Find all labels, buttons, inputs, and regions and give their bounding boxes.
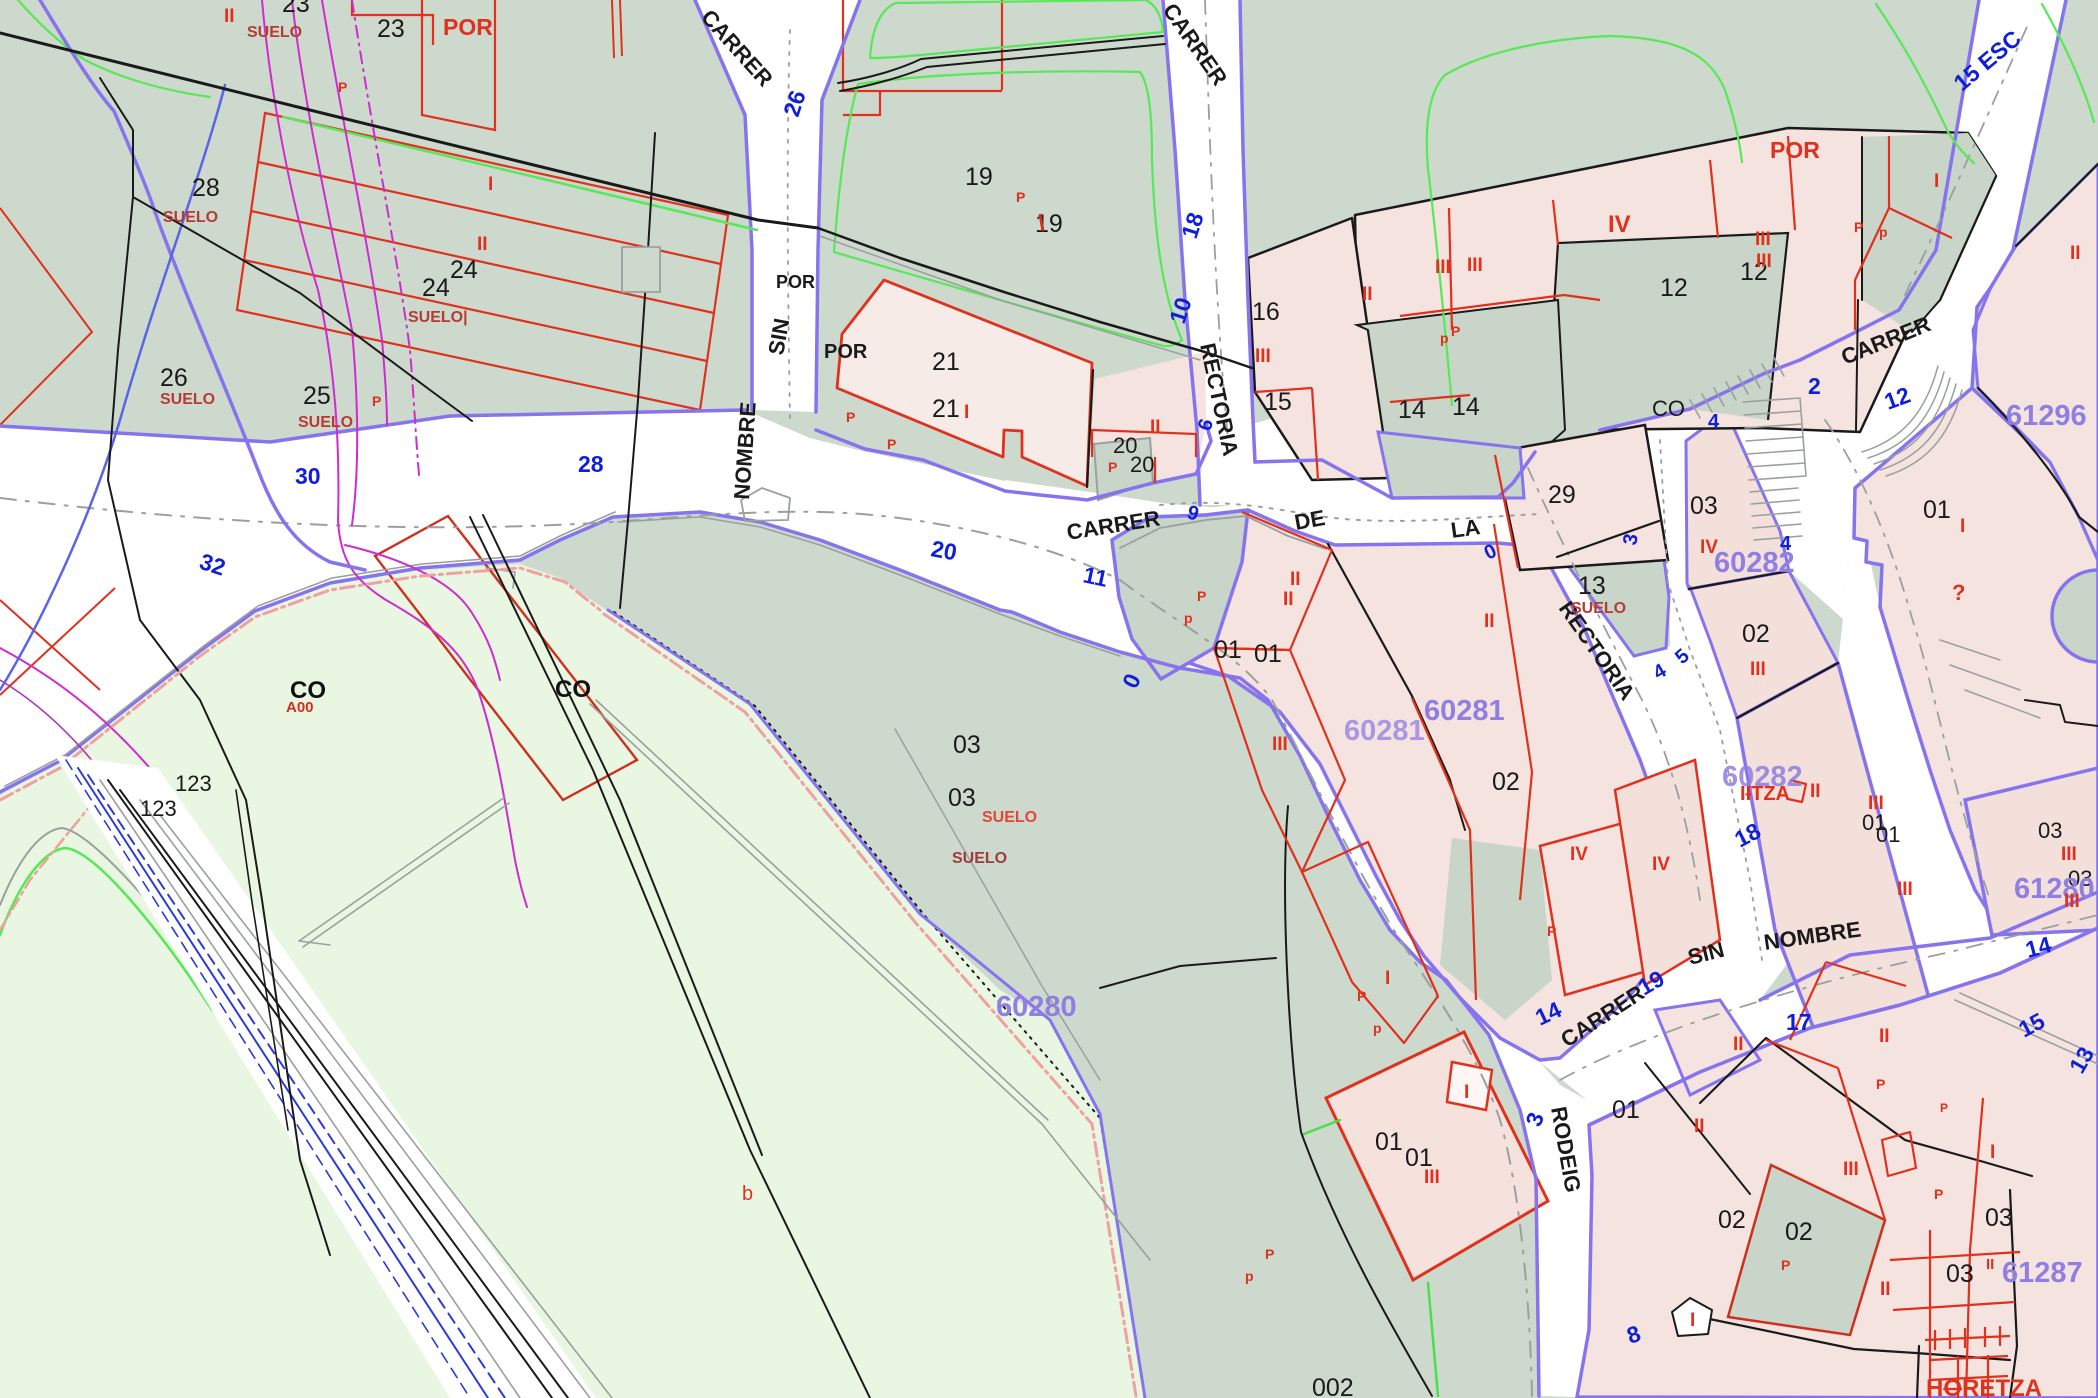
svg-text:II: II (477, 234, 488, 255)
svg-text:III: III (1843, 1159, 1859, 1180)
svg-text:P: P (372, 393, 381, 409)
svg-text:II: II (1150, 417, 1161, 438)
svg-text:16: 16 (1252, 298, 1280, 326)
svg-text:POR: POR (1770, 137, 1820, 163)
svg-text:14: 14 (1398, 396, 1426, 424)
svg-text:III: III (2064, 891, 2080, 912)
svg-text:III: III (1435, 257, 1451, 278)
svg-text:SUELO: SUELO (952, 850, 1007, 867)
svg-text:P: P (338, 79, 347, 95)
svg-text:?: ? (1952, 580, 1965, 605)
svg-text:60282: 60282 (1714, 547, 1795, 579)
svg-text:P: P (887, 436, 896, 452)
svg-text:03: 03 (2038, 818, 2062, 843)
svg-text:II: II (1484, 611, 1495, 632)
svg-text:p: p (1245, 1268, 1254, 1284)
svg-text:01: 01 (1612, 1096, 1640, 1124)
svg-text:SUELO: SUELO (298, 414, 353, 431)
svg-text:P: P (1108, 459, 1117, 475)
svg-text:I: I (1960, 516, 1965, 537)
svg-text:II: II (1733, 1034, 1744, 1055)
svg-text:23: 23 (282, 0, 310, 18)
svg-text:SUELO: SUELO (163, 209, 218, 226)
svg-text:b: b (742, 1183, 753, 1205)
svg-text:II: II (1880, 1279, 1891, 1300)
svg-text:p: p (1440, 330, 1449, 346)
svg-text:POR: POR (776, 272, 815, 292)
svg-text:123: 123 (140, 796, 177, 821)
svg-text:29: 29 (1548, 481, 1576, 509)
svg-text:2: 2 (1808, 373, 1821, 399)
svg-text:IV: IV (1652, 854, 1670, 875)
svg-text:23: 23 (377, 15, 405, 43)
svg-text:60281: 60281 (1344, 715, 1425, 747)
svg-text:60281: 60281 (1424, 695, 1505, 727)
svg-text:III: III (1750, 659, 1766, 680)
svg-text:I: I (1385, 968, 1390, 989)
svg-text:01: 01 (1876, 822, 1900, 847)
svg-text:II: II (1283, 589, 1294, 610)
svg-text:POR: POR (443, 14, 493, 40)
svg-text:CO: CO (555, 676, 591, 703)
svg-text:P: P (1781, 1257, 1790, 1273)
svg-text:SUELO: SUELO (982, 809, 1037, 826)
svg-text:SUELO: SUELO (1571, 600, 1626, 617)
svg-text:P: P (1197, 588, 1206, 604)
svg-text:P: P (846, 409, 855, 425)
svg-text:02: 02 (1492, 768, 1520, 796)
svg-text:SUELO|: SUELO| (408, 309, 468, 326)
svg-text:IV: IV (1570, 844, 1588, 865)
svg-text:P: P (1547, 923, 1556, 939)
svg-text:SUELO: SUELO (160, 391, 215, 408)
svg-text:03: 03 (1985, 1204, 2013, 1232)
svg-text:I: I (964, 402, 969, 423)
svg-text:02: 02 (1742, 620, 1770, 648)
svg-text:P: P (1357, 988, 1366, 1004)
svg-text:I: I (1934, 171, 1939, 192)
svg-text:61287: 61287 (2002, 1257, 2083, 1289)
svg-text:II: II (2070, 243, 2081, 264)
svg-text:02: 02 (1718, 1206, 1746, 1234)
svg-text:I: I (1464, 1082, 1469, 1103)
svg-text:LA: LA (1449, 514, 1482, 543)
svg-text:I: I (488, 174, 493, 195)
svg-text:CO: CO (1652, 396, 1685, 421)
svg-text:30: 30 (295, 463, 321, 489)
svg-text:13: 13 (1578, 572, 1606, 600)
svg-text:POR: POR (824, 341, 868, 363)
svg-text:II: II (224, 6, 235, 27)
svg-text:21: 21 (932, 348, 960, 376)
svg-text:25: 25 (303, 382, 331, 410)
svg-text:03: 03 (1946, 1260, 1974, 1288)
svg-text:24: 24 (450, 256, 478, 284)
svg-text:III: III (1868, 793, 1884, 814)
svg-text:II: II (1986, 1256, 1994, 1273)
svg-text:4: 4 (1708, 411, 1720, 433)
svg-text:A00: A00 (286, 699, 314, 716)
svg-text:DE: DE (1293, 505, 1327, 535)
svg-text:P: P (1940, 1101, 1948, 1115)
svg-text:SUELO: SUELO (247, 24, 302, 41)
svg-text:P: P (1451, 323, 1460, 339)
svg-text:II: II (1879, 1026, 1890, 1047)
svg-text:20: 20 (1130, 452, 1154, 477)
svg-text:I: I (1690, 1310, 1695, 1331)
svg-text:26: 26 (160, 364, 188, 392)
svg-text:II: II (1362, 284, 1373, 305)
svg-text:28: 28 (578, 451, 604, 477)
svg-text:002: 002 (1312, 1374, 1354, 1398)
svg-text:HORETZA: HORETZA (1926, 1375, 2042, 1398)
svg-text:03: 03 (953, 731, 981, 759)
svg-text:20: 20 (929, 535, 959, 565)
svg-text:P: P (1876, 1076, 1885, 1092)
svg-text:P: P (1265, 1246, 1274, 1262)
svg-text:24: 24 (422, 274, 450, 302)
svg-text:61280: 61280 (2014, 873, 2095, 905)
svg-text:p: p (1184, 610, 1193, 626)
svg-text:I: I (1990, 1142, 1995, 1163)
svg-text:II: II (1810, 781, 1821, 802)
svg-text:III: III (1272, 734, 1288, 755)
svg-text:P: P (1016, 189, 1025, 205)
svg-text:21: 21 (932, 395, 960, 423)
svg-text:III: III (1424, 1167, 1440, 1188)
svg-text:01: 01 (1214, 636, 1242, 664)
svg-text:12: 12 (1660, 274, 1688, 302)
svg-text:28: 28 (192, 174, 220, 202)
svg-text:III: III (2061, 844, 2077, 865)
svg-text:p: p (1373, 1020, 1382, 1036)
svg-text:p: p (1879, 224, 1888, 240)
svg-text:03: 03 (1690, 492, 1718, 520)
svg-text:IITZA: IITZA (1740, 783, 1790, 805)
svg-text:01: 01 (1254, 640, 1282, 668)
svg-text:14: 14 (1452, 393, 1480, 421)
svg-text:IV: IV (1608, 211, 1631, 238)
svg-text:III: III (1467, 255, 1483, 276)
svg-text:III: III (1897, 879, 1913, 900)
svg-text:15: 15 (1264, 388, 1292, 416)
svg-text:II: II (1694, 1116, 1705, 1137)
svg-text:01: 01 (1923, 496, 1951, 524)
svg-text:01: 01 (1375, 1128, 1403, 1156)
svg-text:III: III (1756, 251, 1772, 272)
svg-text:III: III (1755, 229, 1771, 250)
svg-text:19: 19 (965, 163, 993, 191)
svg-text:123: 123 (175, 771, 212, 796)
svg-text:II: II (1290, 569, 1301, 590)
svg-text:IV: IV (1700, 537, 1718, 558)
svg-text:61296: 61296 (2006, 400, 2087, 432)
svg-text:17: 17 (1786, 1009, 1812, 1035)
svg-text:02: 02 (1785, 1218, 1813, 1246)
svg-text:P: P (1854, 219, 1863, 235)
svg-text:P: P (1934, 1186, 1943, 1202)
svg-text:03: 03 (948, 784, 976, 812)
svg-text:60280: 60280 (996, 991, 1077, 1023)
svg-text:III: III (1255, 346, 1271, 367)
